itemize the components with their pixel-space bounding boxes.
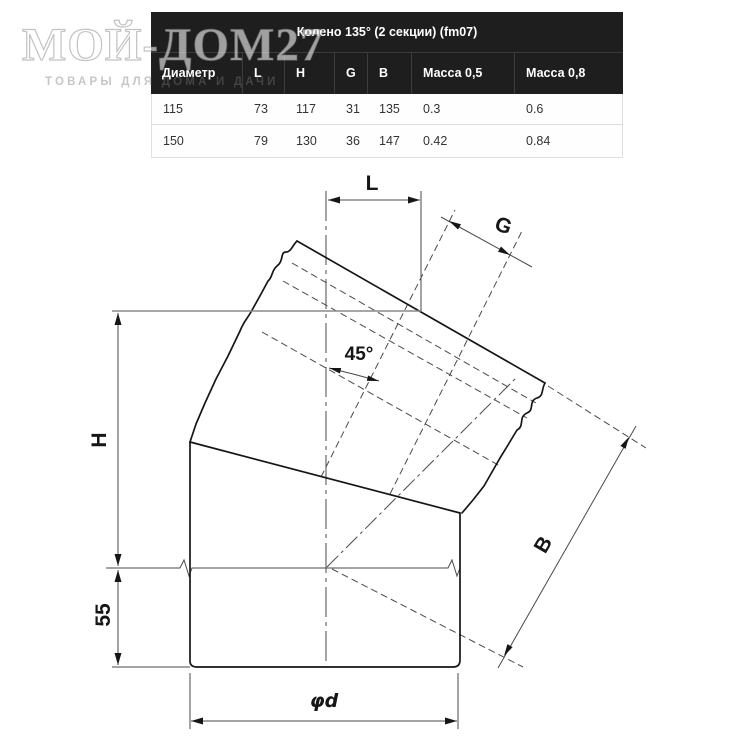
diameter-arrow-right — [445, 718, 457, 725]
b-extension-line-1 — [548, 386, 646, 448]
table-title: Колено 135° (2 секции) (fm07) — [151, 12, 623, 53]
upper-pipe-break-left — [190, 241, 297, 442]
cell-b: 135 — [368, 94, 412, 124]
seam-line-2 — [283, 281, 527, 418]
table-body: 115 73 117 31 135 0.3 0.6 150 79 130 36 … — [151, 94, 623, 158]
cell-mass05: 0.3 — [412, 94, 515, 124]
cell-l: 73 — [243, 94, 285, 124]
upper-pipe-break-right — [462, 383, 545, 513]
column-header-l: L — [242, 53, 284, 94]
seam-line-1 — [292, 263, 536, 403]
cell-b: 147 — [368, 125, 412, 157]
column-header-g: G — [334, 53, 367, 94]
offset-arrow-top — [115, 570, 122, 582]
cell-h: 130 — [285, 125, 335, 157]
b-arrow-bottom — [504, 644, 513, 656]
table-header-row: Диаметр L H G B Масса 0,5 Масса 0,8 — [151, 53, 623, 94]
cell-mass08: 0.84 — [515, 125, 624, 157]
offset-dimension-label: 55 — [92, 603, 115, 627]
offset-arrow-bottom — [115, 653, 122, 665]
product-spec-table: Колено 135° (2 секции) (fm07) Диаметр L … — [151, 12, 623, 158]
miter-joint-line — [190, 442, 460, 513]
b-dimension-label: B — [530, 532, 558, 557]
cell-mass08: 0.6 — [515, 94, 624, 124]
column-header-mass05: Масса 0,5 — [411, 53, 514, 94]
column-header-h: H — [284, 53, 334, 94]
cell-l: 79 — [243, 125, 285, 157]
b-arrow-top — [620, 437, 629, 449]
h-arrow-bottom — [115, 554, 122, 566]
upper-axis-centerline — [327, 378, 516, 567]
joint-centerline — [106, 560, 460, 576]
cell-h: 117 — [285, 94, 335, 124]
b-extension-line-2 — [332, 569, 523, 667]
g-arrow-right — [498, 247, 510, 256]
angle-label: 45° — [345, 344, 374, 365]
diameter-arrow-left — [191, 718, 203, 725]
table-row: 150 79 130 36 147 0.42 0.84 — [152, 124, 622, 157]
l-arrow-right — [408, 197, 420, 204]
l-dimension-label: L — [366, 172, 379, 195]
column-header-b: B — [367, 53, 411, 94]
column-header-diameter: Диаметр — [151, 53, 242, 94]
h-arrow-top — [115, 313, 122, 325]
seam-line-3 — [262, 332, 500, 466]
b-dimension-line — [498, 426, 636, 668]
table-row: 115 73 117 31 135 0.3 0.6 — [152, 94, 622, 124]
h-dimension-label: H — [88, 432, 111, 447]
cell-mass05: 0.42 — [412, 125, 515, 157]
cell-g: 36 — [335, 125, 368, 157]
g-arrow-left — [449, 221, 461, 230]
diameter-label: φd — [310, 690, 339, 712]
l-arrow-left — [328, 197, 340, 204]
angle-arrow-right — [367, 376, 379, 382]
cell-diameter: 150 — [152, 125, 243, 157]
g-extension-line-1 — [321, 210, 455, 477]
cell-g: 31 — [335, 94, 368, 124]
lower-pipe-outline — [190, 442, 460, 667]
cell-diameter: 115 — [152, 94, 243, 124]
column-header-mass08: Масса 0,8 — [514, 53, 623, 94]
g-dimension-label: G — [492, 212, 515, 239]
